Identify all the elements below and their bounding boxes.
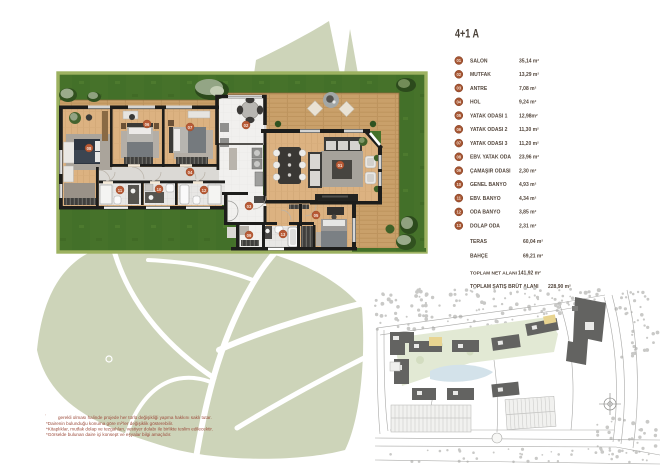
svg-text:ODA BANYO: ODA BANYO [470, 210, 500, 216]
svg-text:10: 10 [456, 182, 461, 187]
svg-text:08: 08 [456, 154, 461, 159]
svg-text:12: 12 [456, 210, 461, 215]
svg-text:13: 13 [281, 232, 286, 237]
svg-text:ÇAMAŞIR ODASI: ÇAMAŞIR ODASI [470, 168, 511, 174]
svg-text:35,14 m²: 35,14 m² [519, 58, 539, 64]
svg-text:09: 09 [456, 168, 461, 173]
svg-text:EBV. YATAK ODA: EBV. YATAK ODA [470, 155, 511, 161]
svg-text:13: 13 [456, 223, 461, 228]
svg-text:08: 08 [87, 146, 92, 151]
svg-text:11,20 m²: 11,20 m² [519, 141, 539, 147]
svg-text:SALON: SALON [470, 58, 488, 64]
svg-text:07: 07 [188, 125, 193, 130]
svg-text:9,24 m²: 9,24 m² [519, 100, 537, 106]
svg-text:12,98m²: 12,98m² [519, 113, 538, 119]
svg-text:11,30 m²: 11,30 m² [519, 127, 539, 133]
svg-text:BAHÇE: BAHÇE [470, 253, 488, 259]
svg-text:YATAK ODASI 2: YATAK ODASI 2 [470, 127, 508, 133]
svg-text:TOPLAM SATIŞ BRÜT ALANI: TOPLAM SATIŞ BRÜT ALANI [470, 283, 539, 290]
svg-text:*Dairenin bulunduğu konuma gör: *Dairenin bulunduğu konuma göre m²’ler d… [46, 421, 173, 426]
svg-text:DOLAP ODA: DOLAP ODA [470, 223, 500, 229]
svg-text:2,31 m²: 2,31 m² [519, 223, 537, 229]
svg-text:*Görselde bulunan daire içi ko: *Görselde bulunan daire içi konsept ve e… [46, 432, 171, 437]
svg-text:GENEL BANYO: GENEL BANYO [470, 182, 507, 188]
svg-text:’: ’ [45, 413, 46, 418]
svg-text:7,08 m²: 7,08 m² [519, 86, 537, 92]
svg-text:13,29 m²: 13,29 m² [519, 72, 539, 78]
svg-text:60,04 m²: 60,04 m² [523, 239, 543, 245]
svg-text:69,21 m²: 69,21 m² [523, 253, 543, 259]
svg-text:12: 12 [202, 188, 207, 193]
svg-text:11: 11 [118, 188, 123, 193]
svg-text:3,85 m²: 3,85 m² [519, 210, 537, 216]
svg-text:04: 04 [188, 170, 193, 175]
svg-text:11: 11 [457, 196, 462, 201]
svg-text:23,96 m²: 23,96 m² [519, 155, 539, 161]
svg-text:03: 03 [247, 204, 252, 209]
svg-text:EBV. BANYO: EBV. BANYO [470, 196, 501, 202]
svg-text:YATAK ODASI 1: YATAK ODASI 1 [470, 113, 508, 119]
svg-text:gerekli olması halinde projede: gerekli olması halinde projede her türlü… [58, 415, 212, 420]
svg-text:4,34 m²: 4,34 m² [519, 196, 537, 202]
svg-text:2,30 m²: 2,30 m² [519, 168, 537, 174]
svg-text:01: 01 [338, 163, 343, 168]
svg-text:141,92 m²: 141,92 m² [518, 270, 541, 276]
svg-text:4+1 A: 4+1 A [455, 29, 479, 41]
svg-text:05: 05 [456, 113, 461, 118]
svg-text:07: 07 [456, 141, 461, 146]
svg-text:MUTFAK: MUTFAK [470, 72, 491, 78]
svg-text:TERAS: TERAS [470, 239, 488, 245]
svg-text:HOL: HOL [470, 100, 481, 106]
svg-text:03: 03 [456, 86, 461, 91]
svg-text:09: 09 [247, 233, 252, 238]
svg-text:*Kitaplıklar, mutfak dolap ve: *Kitaplıklar, mutfak dolap ve tezgahları… [46, 427, 213, 432]
svg-text:4,93 m²: 4,93 m² [519, 182, 537, 188]
svg-text:ANTRE: ANTRE [470, 86, 488, 92]
svg-text:YATAK ODASI 3: YATAK ODASI 3 [470, 141, 508, 147]
svg-text:02: 02 [244, 123, 249, 128]
svg-text:TOPLAM NET ALANI: TOPLAM NET ALANI [470, 270, 518, 276]
svg-text:02: 02 [456, 72, 461, 77]
svg-text:04: 04 [456, 99, 461, 104]
svg-text:01: 01 [456, 58, 461, 63]
svg-text:10: 10 [157, 187, 162, 192]
svg-text:06: 06 [456, 127, 461, 132]
svg-text:06: 06 [145, 122, 150, 127]
svg-text:05: 05 [314, 213, 319, 218]
